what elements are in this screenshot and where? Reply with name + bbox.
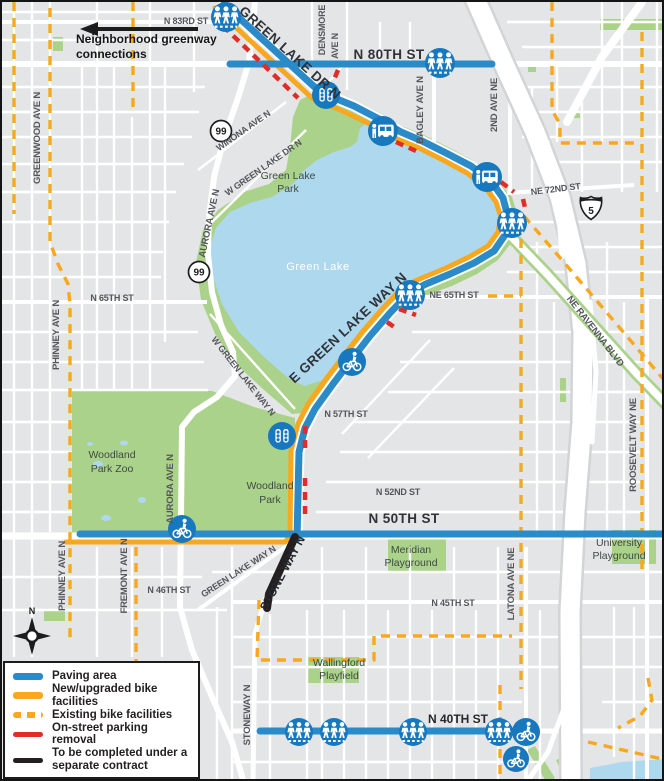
street-label: N 45TH ST bbox=[431, 598, 475, 608]
parking-removal-segment bbox=[387, 322, 397, 329]
street-label: N 46TH ST bbox=[147, 585, 191, 595]
street-label: N 40TH ST bbox=[428, 712, 489, 726]
shield-number: 5 bbox=[588, 206, 594, 217]
street-label: FREMONT AVE N bbox=[119, 538, 130, 613]
street-label: Playground bbox=[592, 550, 645, 562]
legend-label-separate-contract: To be completed under a separate contrac… bbox=[52, 747, 190, 773]
pedestrian-crossing-icon bbox=[320, 718, 348, 746]
street-label: LATONA AVE NE bbox=[506, 548, 517, 621]
icon-glyph bbox=[372, 124, 394, 139]
street-label: N 65TH ST bbox=[90, 293, 134, 303]
compass-center bbox=[26, 630, 38, 642]
bike-route-icon bbox=[338, 348, 366, 376]
legend-label-paving: Paving area bbox=[52, 670, 117, 683]
zoo-pond bbox=[87, 442, 93, 446]
greenway-note: Neighborhood greenway connections bbox=[76, 32, 228, 62]
street-label: Meridian bbox=[391, 544, 431, 556]
street-label: AVE N bbox=[330, 33, 340, 59]
street bbox=[368, 368, 454, 458]
legend-swatch-paving bbox=[13, 673, 43, 680]
street-label: Playground bbox=[384, 557, 437, 569]
pedestrian-crossing-icon bbox=[425, 48, 455, 78]
street-label: ROOSEVELT WAY NE bbox=[628, 398, 639, 492]
street-label: BAGLEY AVE N bbox=[415, 76, 426, 144]
legend-label-new-bike: New/upgraded bike facilities bbox=[52, 683, 190, 709]
legend-row-existing-bike: Existing bike facilities bbox=[13, 709, 190, 722]
street-label: STONEWAY N bbox=[242, 684, 253, 745]
street-label: N 50TH ST bbox=[368, 511, 439, 526]
street-label: AURORA AVE N bbox=[165, 454, 176, 524]
legend-row-paving: Paving area bbox=[13, 670, 190, 683]
bus-stop-icon bbox=[472, 162, 502, 192]
bike-route-icon bbox=[512, 718, 540, 746]
existing-bike-route bbox=[588, 742, 662, 759]
zoo-pond bbox=[120, 441, 128, 446]
street-label: Wallingford bbox=[313, 657, 365, 669]
icon-glyph bbox=[476, 170, 498, 185]
legend-row-separate-contract: To be completed under a separate contrac… bbox=[13, 747, 190, 773]
i5-green-strip bbox=[560, 378, 566, 402]
street-label: Playfield bbox=[319, 670, 359, 682]
street-label: DENSMORE bbox=[317, 5, 327, 56]
legend: Paving area New/upgraded bike facilities… bbox=[3, 661, 200, 779]
zoo-pond bbox=[101, 515, 111, 521]
legend-row-parking-removal: On-street parking removal bbox=[13, 722, 190, 748]
street-label: University bbox=[596, 537, 643, 549]
street-label: PHINNEY AVE N bbox=[51, 300, 62, 370]
ship-canal-water bbox=[590, 759, 662, 779]
bus-stop-icon bbox=[368, 116, 398, 146]
street-label: N 52ND ST bbox=[376, 487, 421, 497]
street-label: Woodland bbox=[88, 449, 135, 461]
pedestrian-crossing-icon bbox=[399, 718, 427, 746]
street-label: Park bbox=[277, 183, 299, 195]
icon-circle bbox=[268, 422, 296, 450]
map-page: 99995N 83RD STGREEN LAKE DR NDENSMOREAVE… bbox=[0, 0, 664, 781]
existing-bike-route bbox=[257, 600, 512, 660]
parking-removal-segment bbox=[399, 309, 416, 315]
street-label: 2ND AVE NE bbox=[489, 78, 500, 132]
legend-label-parking-removal: On-street parking removal bbox=[52, 722, 190, 748]
bike-route-icon bbox=[503, 746, 529, 772]
legend-swatch-parking-removal bbox=[13, 732, 43, 737]
pedestrian-crossing-icon bbox=[211, 2, 241, 32]
street-label: Park bbox=[259, 494, 281, 506]
street-label: Park Zoo bbox=[91, 463, 134, 475]
pedestrian-crossing-icon bbox=[285, 718, 313, 746]
street-label: N 80TH ST bbox=[353, 47, 424, 62]
pedestrian-crossing-icon bbox=[497, 208, 527, 238]
legend-swatch-new-bike bbox=[13, 692, 43, 699]
zoo-pond bbox=[138, 497, 146, 503]
legend-swatch-separate-contract bbox=[13, 758, 43, 763]
street-label: NE 65TH ST bbox=[429, 290, 479, 300]
pedestrian-crossing-icon bbox=[485, 718, 513, 746]
street-label: PHINNEY AVE N bbox=[57, 541, 68, 611]
legend-swatch-existing-bike bbox=[13, 712, 43, 718]
street-label: N 83RD ST bbox=[164, 16, 209, 26]
compass-north-label: N bbox=[29, 606, 36, 616]
street-label: Green Lake bbox=[261, 170, 316, 182]
street-label: GREENWOOD AVE N bbox=[32, 92, 43, 184]
street-label: N 57TH ST bbox=[324, 409, 368, 419]
traffic-signal-icon bbox=[268, 422, 296, 450]
street-label: Green Lake bbox=[286, 261, 349, 273]
highway-99-shield: 99 bbox=[189, 262, 210, 283]
street-label: Woodland bbox=[246, 480, 293, 492]
parking-removal-segment bbox=[523, 199, 526, 212]
legend-row-new-bike: New/upgraded bike facilities bbox=[13, 683, 190, 709]
shield-number: 99 bbox=[193, 268, 205, 279]
legend-label-existing-bike: Existing bike facilities bbox=[52, 709, 172, 722]
interstate-5-shield: 5 bbox=[580, 197, 601, 220]
shield-number: 99 bbox=[215, 127, 227, 138]
